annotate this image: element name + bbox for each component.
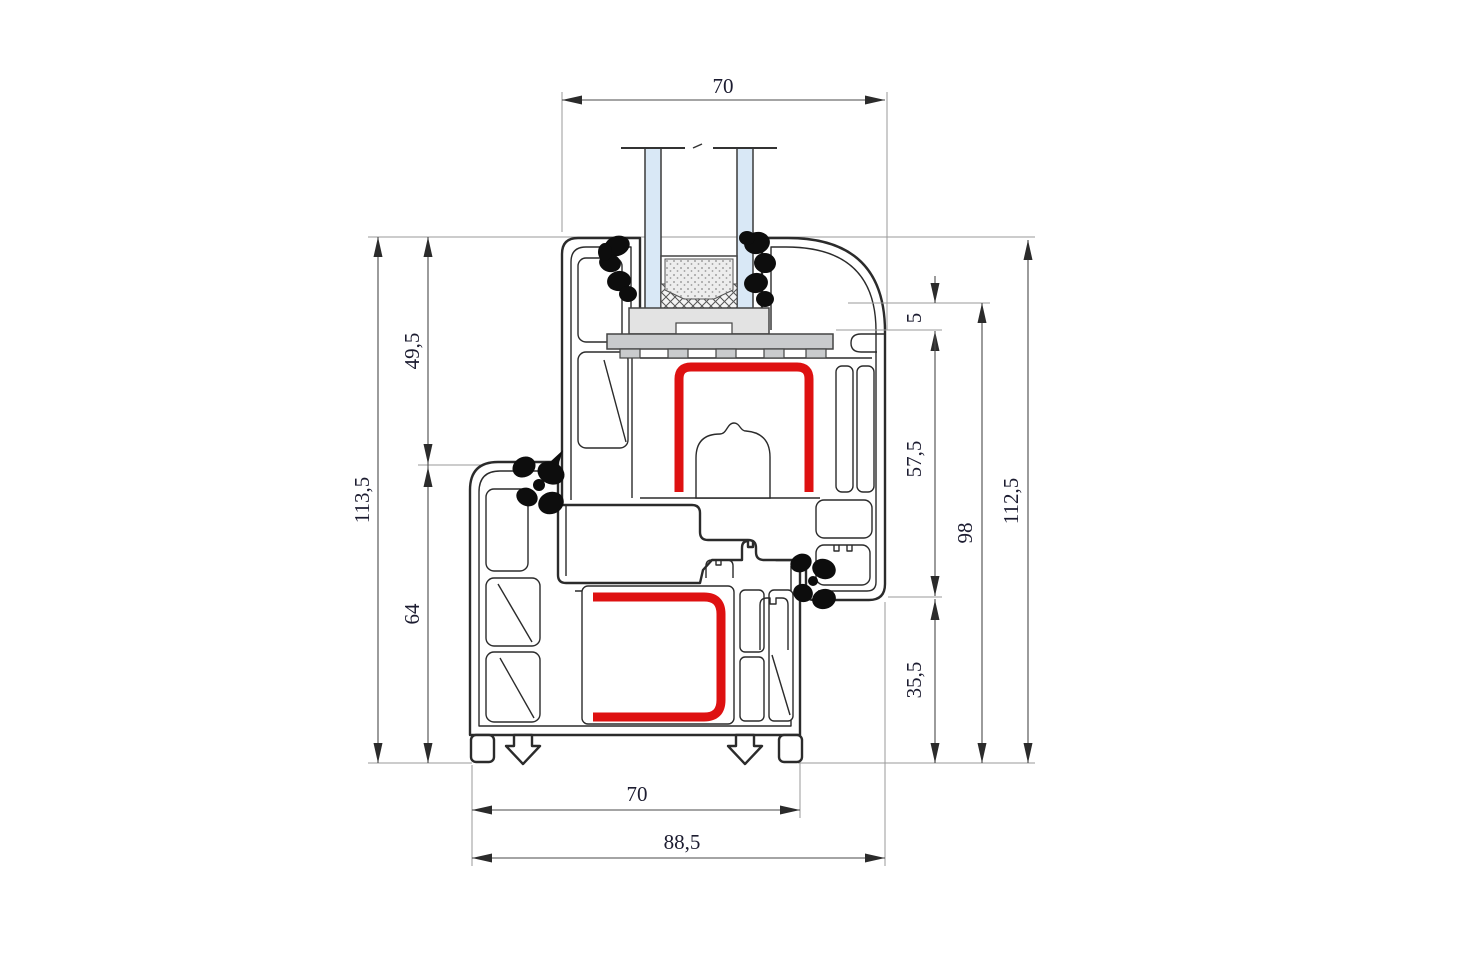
glazing-bridge [607, 334, 833, 349]
dimension-lower-frame-height: 35,5 [902, 599, 940, 763]
dim-label-rebate-height: 98 [953, 523, 977, 544]
dim-label-top-width: 70 [713, 74, 734, 98]
dimension-sash-face-height: 57,5 [902, 331, 940, 596]
frame-foot-arrow-left [506, 735, 540, 764]
dim-label-drip-step: 5 [902, 313, 926, 324]
dimension-total-height-right: 112,5 [999, 240, 1033, 763]
profile-drawing: 70 49,5 64 113,5 5 57,5 35,5 [0, 0, 1464, 977]
spacer-desiccant [665, 259, 733, 299]
dim-label-sash-face-height: 57,5 [902, 441, 926, 478]
glass-pane-outer [645, 148, 661, 310]
frame-foot-arrow-right [728, 735, 762, 764]
dimension-frame-width: 70 [472, 782, 800, 815]
dimension-top-width: 70 [562, 74, 885, 105]
dim-label-lower-frame-height: 35,5 [902, 662, 926, 699]
dimension-drip-step: 5 [902, 276, 940, 351]
dim-label-total-width: 88,5 [664, 830, 701, 854]
break-mark [693, 144, 702, 148]
frame-foot-right [779, 735, 802, 762]
dim-label-frame-height: 64 [400, 603, 424, 625]
frame-foot-left [471, 735, 494, 762]
dimension-rebate-height: 98 [953, 303, 987, 763]
dimension-sash-height: 49,5 [400, 237, 433, 465]
dim-label-sash-height: 49,5 [400, 333, 424, 370]
dim-label-total-height-left: 113,5 [350, 477, 374, 523]
dimension-total-width: 88,5 [472, 830, 885, 863]
dim-label-frame-width: 70 [627, 782, 648, 806]
frame-reinforcement-chamber [582, 586, 734, 724]
dimension-total-height-left: 113,5 [350, 237, 383, 763]
drawing-canvas: 70 49,5 64 113,5 5 57,5 35,5 [0, 0, 1464, 977]
dimension-frame-height: 64 [400, 465, 433, 763]
dim-label-total-height-right: 112,5 [999, 478, 1023, 524]
